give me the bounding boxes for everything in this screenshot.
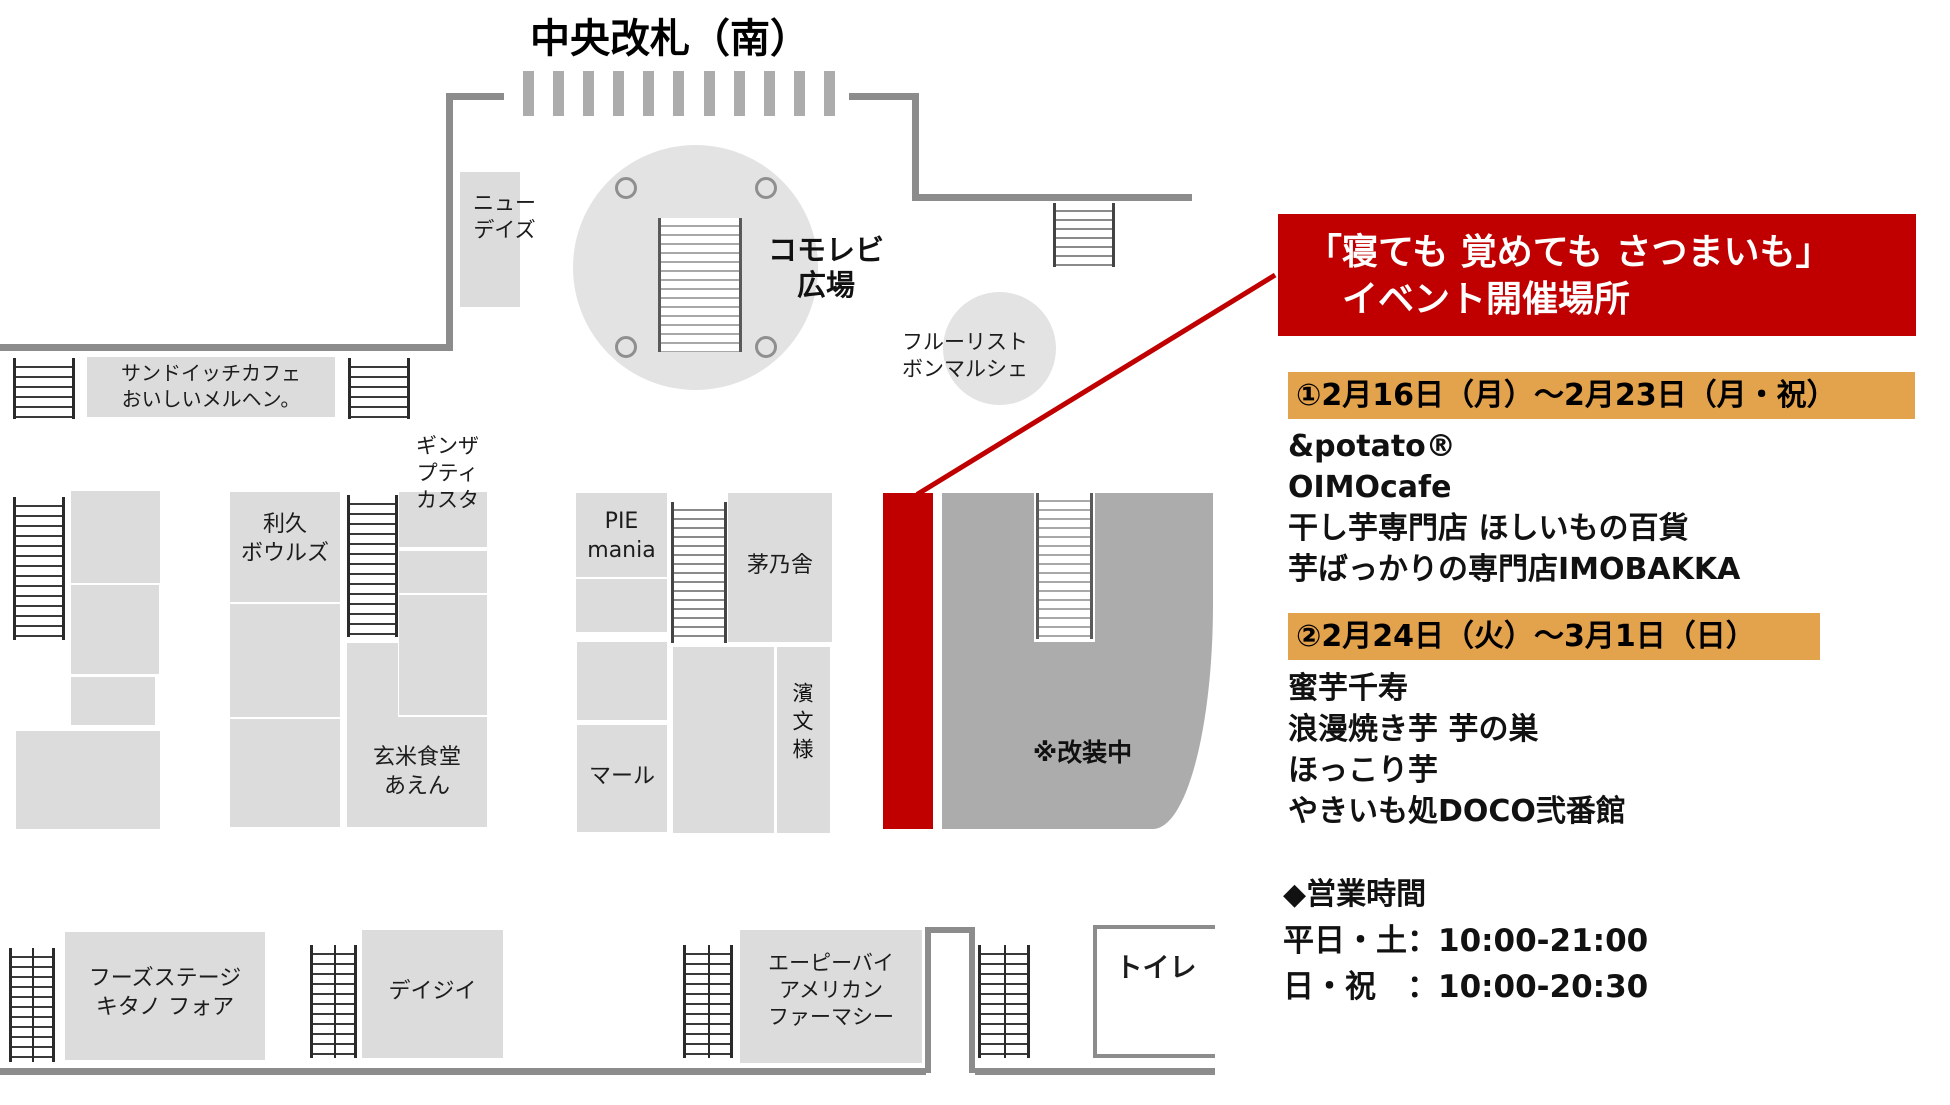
shop-unit (71, 677, 155, 725)
business-hours: ◆営業時間 平日・土：10:00-21:00 日・祝 ：10:00-20:30 (1283, 872, 1648, 1010)
shop-unit (399, 595, 487, 715)
stairs-icon (13, 358, 75, 419)
plaza-label: コモレビ 広場 (746, 233, 906, 303)
stairs-icon (658, 218, 742, 352)
shop-unit (230, 719, 340, 827)
shop-genmai-shokudo-label: 玄米食堂 あえん (357, 743, 477, 801)
page-title: 中央改札（南） (470, 6, 870, 64)
shop-unit (71, 491, 160, 583)
stairs-icon (671, 502, 727, 643)
shop-unit (71, 585, 159, 674)
event-banner-line2: イベント開催場所 (1306, 276, 1916, 323)
shop-kayanoya-label: 茅乃舎 (728, 552, 832, 579)
period1-shop-list: &potato® OIMOcafe 干し芋専門店 ほしいもの百貨 芋ばっかりの専… (1288, 426, 1740, 590)
event-banner-line1: 「寝ても 覚めても さつまいも」 (1306, 229, 1916, 276)
shop-unit (230, 604, 340, 717)
stairs-icon (1053, 203, 1115, 267)
shop-fleuriste-label: フルーリスト ボンマルシェ (890, 329, 1040, 383)
shop-unit (577, 642, 667, 720)
event-banner: 「寝ても 覚めても さつまいも」 イベント開催場所 (1278, 214, 1916, 336)
stairs-icon (348, 358, 410, 419)
shop-foods-stage-label: フーズステージ キタノ フォア (65, 964, 265, 1022)
wall-segment (849, 93, 919, 100)
wall-segment (0, 344, 453, 351)
business-hours-title: ◆営業時間 (1283, 872, 1648, 918)
shop-marl-label: マール (577, 763, 667, 790)
shop-unit (576, 579, 667, 632)
toilet-room: トイレ (1093, 925, 1215, 1058)
wall-segment (912, 194, 1192, 201)
shop-ginza-petit-custa-label: ギンザ プティ カスタ (400, 433, 495, 514)
list-item: やきいも処DOCO弐番館 (1288, 791, 1626, 832)
stairs-icon (310, 945, 357, 1058)
shop-daisy-label: デイジイ (362, 978, 503, 1005)
wall-segment (912, 93, 919, 201)
stairs-icon (13, 497, 65, 640)
shop-american-pharmacy-label: エーピーバイ アメリカン ファーマシー (740, 950, 922, 1031)
period2-shop-list: 蜜芋千寿 浪漫焼き芋 芋の巣 ほっこり芋 やきいも処DOCO弐番館 (1288, 668, 1626, 832)
pillar-icon (615, 177, 637, 199)
list-item: 蜜芋千寿 (1288, 668, 1626, 709)
shop-newdays-label: ニュー デイズ (452, 190, 557, 244)
wall-segment (0, 1068, 926, 1075)
business-hours-weekday: 平日・土：10:00-21:00 (1283, 918, 1648, 964)
business-hours-sunday: 日・祝 ：10:00-20:30 (1283, 964, 1648, 1010)
wall-segment (925, 927, 931, 1073)
list-item: ほっこり芋 (1288, 750, 1626, 791)
list-item: 浪漫焼き芋 芋の巣 (1288, 709, 1626, 750)
shop-unit (16, 731, 160, 829)
ticket-gates-icon (523, 71, 835, 116)
period2-header: ②2月24日（火）～3月1日（日） (1288, 613, 1820, 660)
renovation-label: ※改装中 (1000, 733, 1165, 769)
list-item: &potato® (1288, 426, 1740, 467)
stairs-icon (978, 945, 1030, 1058)
wall-segment (969, 927, 975, 1073)
event-location-marker (883, 493, 933, 829)
stairs-icon (9, 948, 55, 1062)
wall-segment (446, 93, 504, 100)
floor-map-slide: 中央改札（南） コモレビ 広場 ニュー デイズ フルーリスト ボンマルシェ サン… (0, 0, 1950, 1105)
shop-unit (673, 647, 774, 833)
period1-header: ①2月16日（月）～2月23日（月・祝） (1288, 372, 1915, 419)
pillar-icon (755, 336, 777, 358)
list-item: 芋ばっかりの専門店IMOBAKKA (1288, 549, 1740, 590)
shop-rikyu-bowls-label: 利久 ボウルズ (230, 510, 340, 568)
stairs-icon (347, 495, 398, 637)
shop-hamamonyo-label: 濱文様 (787, 682, 817, 766)
pillar-icon (615, 336, 637, 358)
shop-unit (399, 551, 487, 593)
toilet-label: トイレ (1097, 955, 1215, 982)
shop-sandwich-cafe-label: サンドイッチカフェ おいしいメルヘン。 (87, 360, 335, 412)
stairs-icon (1036, 493, 1093, 639)
wall-segment (925, 927, 975, 933)
wall-segment (975, 1068, 1215, 1075)
pillar-icon (755, 177, 777, 199)
list-item: 干し芋専門店 ほしいもの百貨 (1288, 508, 1740, 549)
stairs-icon (683, 945, 733, 1058)
list-item: OIMOcafe (1288, 467, 1740, 508)
shop-pie-mania-label: PIE mania (576, 507, 667, 565)
